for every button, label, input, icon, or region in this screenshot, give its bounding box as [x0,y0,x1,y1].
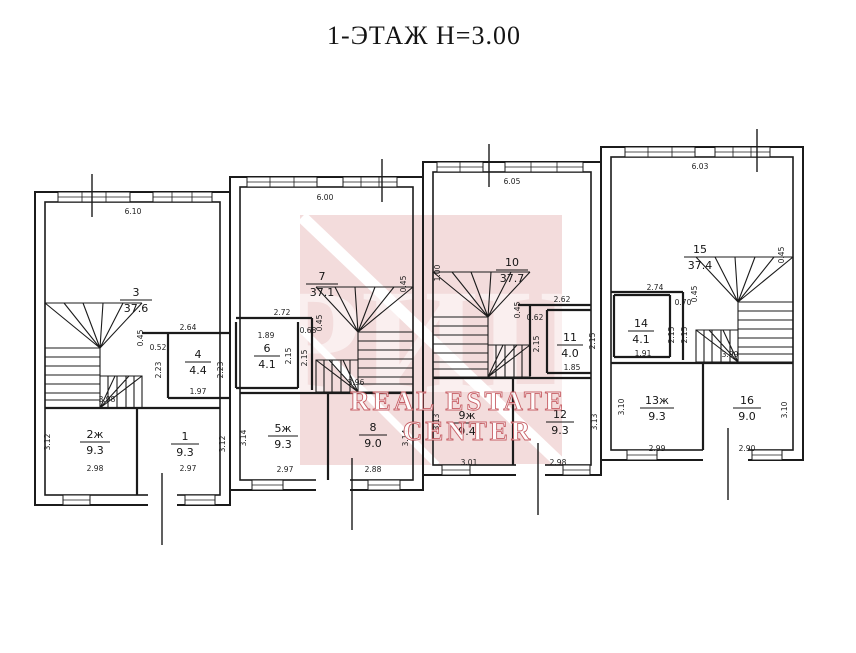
svg-text:37.4: 37.4 [688,259,713,272]
watermark-line-2: CENTER [403,416,534,446]
svg-text:4.0: 4.0 [561,347,579,360]
window-icon [247,177,397,187]
unit-4: 15 37.4 14 4.1 13ж 9.3 16 9.0 6.03 2.74 … [601,129,803,500]
unit-1: 3 37.6 4 4.4 2ж 9.3 1 9.3 6.10 2.64 0.45… [35,174,230,545]
svg-text:5ж: 5ж [275,422,292,435]
svg-text:16: 16 [740,394,754,407]
dim: 0.45 [315,314,324,331]
room-label-14: 14 4.1 [628,317,654,346]
room-label-16: 16 9.0 [733,394,761,423]
room-label-4: 4 4.4 [185,348,211,377]
dim: 2.97 [277,465,294,474]
svg-text:37.6: 37.6 [124,302,149,315]
dim: 3.98 [99,395,116,404]
svg-text:1: 1 [182,430,189,443]
dim-width: 6.03 [692,162,709,171]
dim: 2.23 [216,361,225,378]
svg-text:13ж: 13ж [645,394,669,407]
svg-text:9.0: 9.0 [738,410,756,423]
dim: 2.15 [300,349,309,366]
dim: 2.23 [154,361,163,378]
dim-width: 6.00 [317,193,334,202]
dim: 2.72 [274,308,291,317]
dim: 0.45 [136,329,145,346]
dim: 2.97 [180,464,197,473]
dim: 2.15 [680,326,689,343]
dim-width: 6.10 [125,207,142,216]
dim: 2.98 [87,464,104,473]
svg-text:4: 4 [195,348,202,361]
window-icon [252,479,400,491]
svg-text:10: 10 [505,256,519,269]
dim: 0.52 [150,343,167,352]
svg-text:9.3: 9.3 [551,424,569,437]
dim: 2.98 [550,458,567,467]
floor-plan-drawing: РИЦ 1-ЭТАЖ Н=3.00 3 [0,0,856,653]
svg-text:11: 11 [563,331,577,344]
room-label-15: 15 37.4 [684,243,716,272]
room-label-3: 3 37.6 [120,286,152,315]
dim: 2.88 [365,465,382,474]
dim: 2.15 [667,326,676,343]
page-title: 1-ЭТАЖ Н=3.00 [327,21,521,50]
dim: 2.99 [649,444,666,453]
dim: 0.62 [527,313,544,322]
svg-text:9.3: 9.3 [86,444,104,457]
window-icon [625,147,770,157]
dim: 3.10 [780,401,789,418]
dim: 2.90 [739,444,756,453]
svg-text:9.3: 9.3 [274,438,292,451]
svg-text:3: 3 [133,286,140,299]
dim: 1.91 [635,349,652,358]
svg-text:37.1: 37.1 [310,286,335,299]
dim: 3.14 [239,429,248,446]
svg-text:8: 8 [370,421,377,434]
svg-text:14: 14 [634,317,648,330]
svg-text:4.4: 4.4 [189,364,207,377]
dim: 2.74 [647,283,664,292]
dim: 1.00 [433,264,442,281]
svg-text:9.3: 9.3 [176,446,194,459]
svg-text:4.1: 4.1 [258,358,276,371]
svg-text:9.0: 9.0 [364,437,382,450]
svg-text:4.1: 4.1 [632,333,650,346]
dim: 2.64 [180,323,197,332]
watermark-line-1: REAL ESTATE [350,386,566,416]
dim-width: 6.05 [504,177,521,186]
room-label-13zh: 13ж 9.3 [640,394,674,423]
dim: 3.12 [43,433,52,450]
floor-plan-page: РИЦ 1-ЭТАЖ Н=3.00 3 [0,0,856,653]
dim: 1.97 [190,387,207,396]
dim: 3.01 [461,458,478,467]
dim: 1.89 [258,331,275,340]
dim: 0.45 [777,246,786,263]
dim: 2.15 [588,332,597,349]
room-label-2zh: 2ж 9.3 [80,428,110,457]
window-icon [437,162,583,172]
room-label-5zh: 5ж 9.3 [268,422,298,451]
window-icon [58,192,212,202]
room-label-1: 1 9.3 [171,430,199,459]
dim: 0.70 [675,298,692,307]
dim: 3.13 [590,413,599,430]
svg-text:15: 15 [693,243,707,256]
svg-text:37.7: 37.7 [500,272,525,285]
svg-text:6: 6 [264,342,271,355]
dim: 2.62 [554,295,571,304]
dim: 0.45 [399,275,408,292]
dim: 2.15 [532,335,541,352]
dim: 3.10 [617,398,626,415]
dim: 2.15 [284,347,293,364]
svg-text:7: 7 [319,270,326,283]
svg-text:2ж: 2ж [87,428,104,441]
dim: 3.99 [722,350,739,359]
dim: 1.85 [564,363,581,372]
svg-text:9.3: 9.3 [648,410,666,423]
dim: 0.45 [513,301,522,318]
dim: 3.12 [218,435,227,452]
